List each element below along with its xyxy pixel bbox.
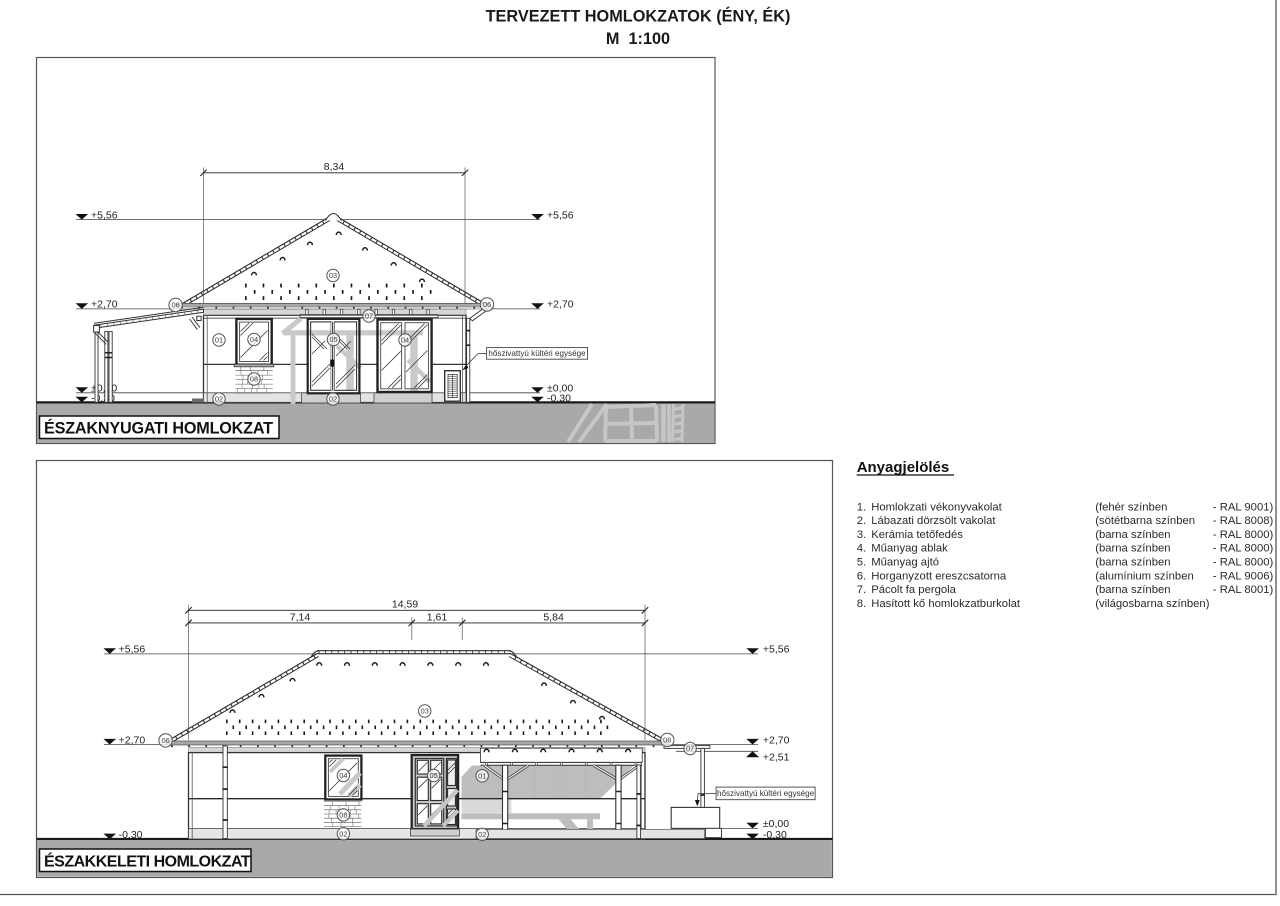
svg-text:08: 08 bbox=[250, 375, 258, 384]
svg-text:Pácolt fa pergola: Pácolt fa pergola bbox=[871, 584, 956, 596]
svg-text:(világosbarna színben): (világosbarna színben) bbox=[1095, 598, 1210, 610]
svg-text:02: 02 bbox=[339, 829, 347, 838]
svg-text:(alumínium színben: (alumínium színben bbox=[1095, 570, 1194, 582]
svg-text:8,34: 8,34 bbox=[324, 161, 345, 173]
svg-text:- RAL 8008): - RAL 8008) bbox=[1213, 515, 1274, 527]
svg-text:02: 02 bbox=[329, 395, 337, 404]
svg-text:- RAL 8000): - RAL 8000) bbox=[1213, 543, 1274, 555]
svg-text:06: 06 bbox=[161, 736, 169, 745]
svg-text:14,59: 14,59 bbox=[392, 599, 418, 611]
svg-text:ÉSZAKKELETI HOMLOKZAT: ÉSZAKKELETI HOMLOKZAT bbox=[44, 852, 251, 871]
svg-text:7.: 7. bbox=[857, 584, 866, 596]
svg-text:08: 08 bbox=[339, 811, 347, 820]
svg-text:3.: 3. bbox=[857, 529, 866, 541]
svg-text:01: 01 bbox=[215, 336, 223, 345]
svg-text:5,84: 5,84 bbox=[543, 611, 564, 623]
svg-text:Hasított kő homlokzatburkolat: Hasított kő homlokzatburkolat bbox=[871, 598, 1021, 610]
svg-text:Lábazati dörzsölt vakolat: Lábazati dörzsölt vakolat bbox=[871, 515, 996, 527]
svg-text:06: 06 bbox=[171, 301, 179, 310]
svg-text:+5,56: +5,56 bbox=[547, 209, 574, 221]
svg-text:(barna színben: (barna színben bbox=[1095, 543, 1170, 555]
svg-text:07: 07 bbox=[686, 744, 694, 753]
svg-text:5.: 5. bbox=[857, 557, 866, 569]
svg-text:Műanyag ablak: Műanyag ablak bbox=[871, 543, 948, 555]
svg-text:07: 07 bbox=[365, 312, 373, 321]
svg-text:(barna színben: (barna színben bbox=[1095, 584, 1170, 596]
svg-text:03: 03 bbox=[421, 707, 429, 716]
svg-text:Homlokzati vékonyvakolat: Homlokzati vékonyvakolat bbox=[871, 501, 1002, 513]
svg-text:+2,70: +2,70 bbox=[547, 299, 574, 311]
svg-text:04: 04 bbox=[401, 336, 409, 345]
svg-text:2.: 2. bbox=[857, 515, 866, 527]
svg-text:Horganyzott ereszcsatorna: Horganyzott ereszcsatorna bbox=[871, 570, 1007, 582]
svg-text:Kerámia tetőfedés: Kerámia tetőfedés bbox=[871, 529, 963, 541]
svg-text:hőszivattyú kültéri egysége: hőszivattyú kültéri egysége bbox=[717, 789, 815, 798]
svg-text:(barna színben: (barna színben bbox=[1095, 529, 1170, 541]
svg-text:+2,51: +2,51 bbox=[763, 751, 790, 763]
svg-text:+5,56: +5,56 bbox=[119, 644, 146, 656]
svg-text:Műanyag ajtó: Műanyag ajtó bbox=[871, 557, 939, 569]
svg-text:+2,70: +2,70 bbox=[763, 734, 790, 746]
svg-text:+2,70: +2,70 bbox=[119, 734, 146, 746]
svg-text:- RAL 8000): - RAL 8000) bbox=[1213, 529, 1274, 541]
svg-text:+2,70: +2,70 bbox=[91, 299, 118, 311]
svg-text:TERVEZETT HOMLOKZATOK (ÉNY, ÉK: TERVEZETT HOMLOKZATOK (ÉNY, ÉK) bbox=[486, 7, 791, 26]
svg-text:4.: 4. bbox=[857, 543, 866, 555]
svg-text:8.: 8. bbox=[857, 598, 866, 610]
svg-text:- RAL 9006): - RAL 9006) bbox=[1213, 570, 1274, 582]
svg-text:(sötétbarna színben: (sötétbarna színben bbox=[1095, 515, 1195, 527]
svg-text:- RAL 9001): - RAL 9001) bbox=[1213, 501, 1274, 513]
svg-text:Anyagjelölés: Anyagjelölés bbox=[857, 459, 950, 476]
svg-text:02: 02 bbox=[215, 395, 223, 404]
svg-text:7,14: 7,14 bbox=[290, 611, 311, 623]
svg-text:05: 05 bbox=[429, 771, 437, 780]
svg-text:+5,56: +5,56 bbox=[763, 644, 790, 656]
svg-text:04: 04 bbox=[339, 771, 347, 780]
svg-text:hőszivattyú kültéri egysége: hőszivattyú kültéri egysége bbox=[488, 349, 586, 358]
svg-text:03: 03 bbox=[329, 271, 337, 280]
svg-text:- RAL 8000): - RAL 8000) bbox=[1213, 557, 1274, 569]
svg-text:(barna színben: (barna színben bbox=[1095, 557, 1170, 569]
svg-text:6.: 6. bbox=[857, 570, 866, 582]
svg-text:1.: 1. bbox=[857, 501, 866, 513]
svg-text:06: 06 bbox=[483, 300, 491, 309]
svg-text:01: 01 bbox=[478, 772, 486, 781]
svg-text:02: 02 bbox=[478, 830, 486, 839]
svg-text:05: 05 bbox=[329, 335, 337, 344]
svg-text:M 1:100: M 1:100 bbox=[606, 30, 670, 48]
svg-text:06: 06 bbox=[663, 736, 671, 745]
svg-text:1,61: 1,61 bbox=[427, 611, 448, 623]
svg-text:+5,56: +5,56 bbox=[91, 209, 118, 221]
svg-text:04: 04 bbox=[250, 335, 258, 344]
svg-text:ÉSZAKNYUGATI HOMLOKZAT: ÉSZAKNYUGATI HOMLOKZAT bbox=[44, 419, 273, 438]
svg-text:- RAL 8001): - RAL 8001) bbox=[1213, 584, 1274, 596]
svg-text:(fehér színben: (fehér színben bbox=[1095, 501, 1167, 513]
